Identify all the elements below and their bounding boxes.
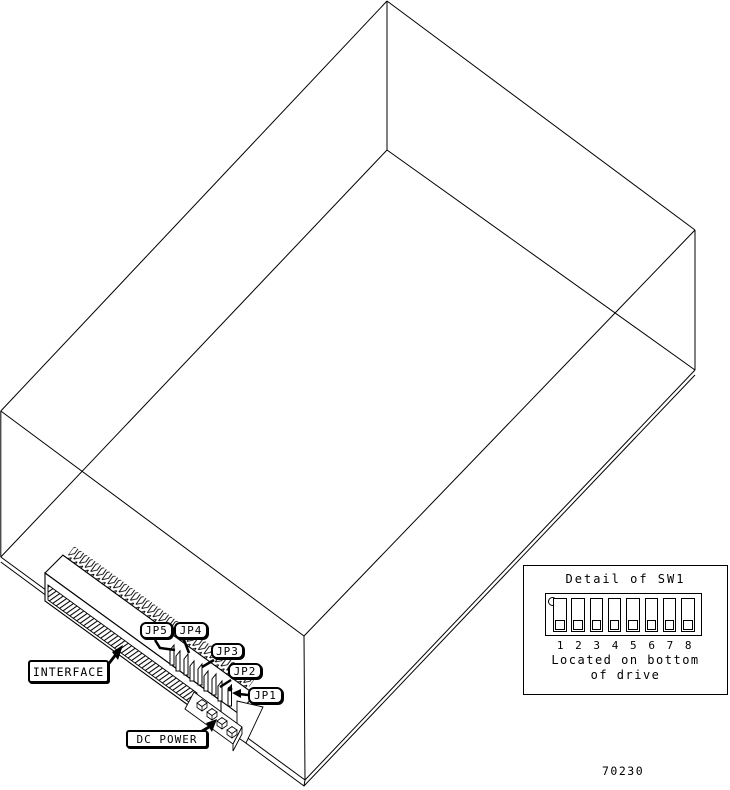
dip-switch-slot-4 [608,598,622,632]
jp1-pin [228,685,233,706]
dip-switch-slot-3 [590,598,604,632]
drive-diagram-page: INTERFACE JP5 JP4 JP3 JP2 JP1 DC POWER D… [0,0,730,790]
sw1-location-note-line2: of drive [524,668,727,682]
dip-switch-number: 7 [661,639,679,652]
interface-callout-label: INTERFACE [28,660,109,683]
dip-switch-slot-1 [553,598,567,632]
jp4-callout-label: JP4 [174,622,208,639]
dip-switch-slot-2 [571,598,585,632]
dip-switch-handle [555,620,565,631]
dip-switch-handle [592,620,602,631]
dip-switch-slot-6 [645,598,659,632]
jp3-callout-label: JP3 [211,643,244,659]
sw1-location-note-line1: Located on bottom [524,653,727,667]
dip-switch-number: 2 [569,639,587,652]
dip-switch-handle [573,620,583,631]
dc-power-callout-label: DC POWER [126,730,208,748]
dip-switch-number: 4 [606,639,624,652]
dip-switch-body [545,593,702,636]
dip-switch-number: 3 [588,639,606,652]
jp5-callout-label: JP5 [140,622,173,639]
top-face-edges [1,1,695,636]
dip-switch-handle [628,620,638,631]
dip-switch-handle [683,620,693,631]
dip-switch-slot-7 [663,598,677,632]
dip-switch-slot-8 [681,598,695,632]
dip-switch-handle [665,620,675,631]
dip-switch-handle [647,620,657,631]
dip-switch-number: 6 [642,639,660,652]
bottom-face-edges [1,150,695,557]
dip-switch-number: 5 [624,639,642,652]
figure-number: 70230 [602,764,644,778]
dip-switch-number: 1 [551,639,569,652]
dip-switch-number: 8 [679,639,697,652]
dip-switch-handle [610,620,620,631]
jp2-callout-label: JP2 [228,663,262,679]
sw1-detail-title: Detail of SW1 [524,572,727,586]
jp1-callout-label: JP1 [248,687,283,704]
dip-switch-numbers: 1 2 3 4 5 6 7 8 [551,639,697,652]
dip-switch-slot-5 [626,598,640,632]
sw1-detail-inset: Detail of SW1 1 2 3 4 5 6 7 8 Located on… [523,565,728,695]
